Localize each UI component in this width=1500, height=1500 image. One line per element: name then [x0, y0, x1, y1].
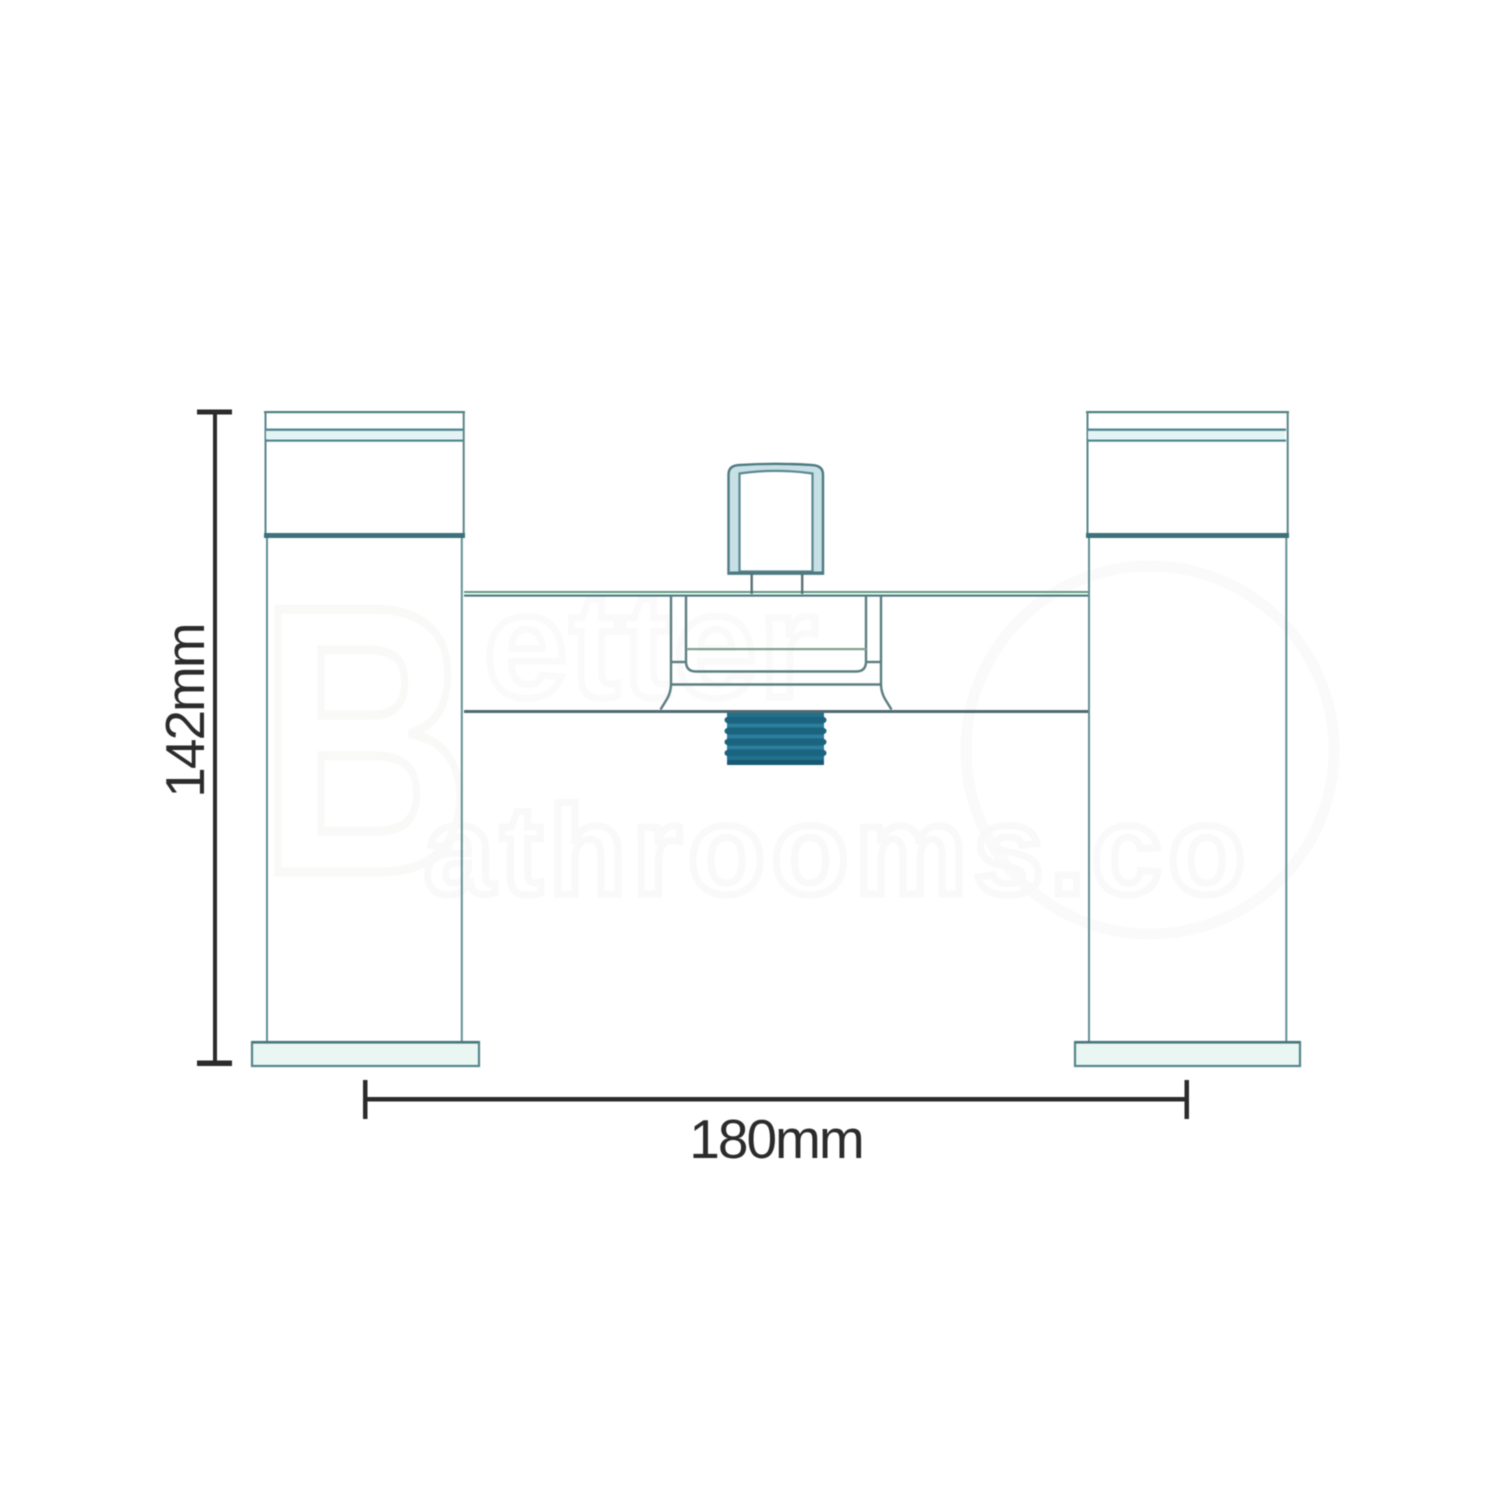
svg-text:etter: etter	[484, 561, 819, 729]
svg-text:180mm: 180mm	[689, 1108, 862, 1170]
svg-text:142mm: 142mm	[154, 624, 216, 797]
svg-text:athrooms.co: athrooms.co	[424, 780, 1252, 921]
